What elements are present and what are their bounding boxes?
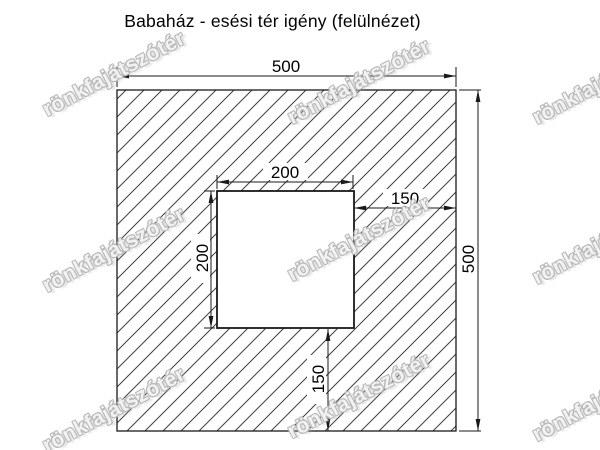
dim-bottom-offset-label: 150: [309, 365, 328, 393]
diagram-canvas: Babaház - esési tér igény (felülnézet) 5…: [0, 0, 600, 450]
dim-outer-height-label: 500: [459, 245, 478, 273]
dim-inner-height-label: 200: [193, 244, 212, 272]
dim-outer-width-label: 500: [272, 57, 300, 76]
fall-zone-drawing: 500 500 200 200 150 150: [0, 0, 600, 450]
dim-right-offset-label: 150: [391, 189, 419, 208]
inner-footprint: [217, 191, 354, 328]
dim-inner-width-label: 200: [271, 163, 299, 182]
